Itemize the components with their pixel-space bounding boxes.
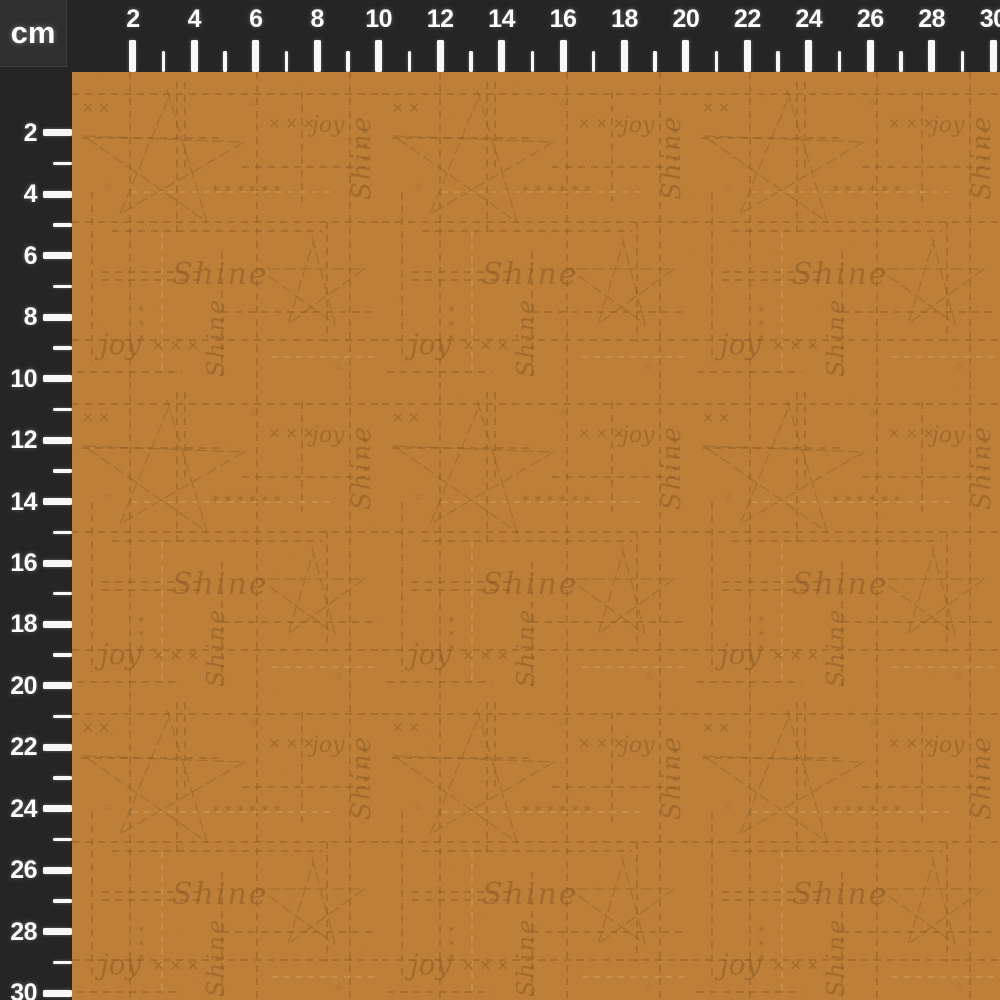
top-ruler-tick-12cm xyxy=(437,40,444,72)
top-ruler-tick-24cm xyxy=(805,40,812,72)
left-ruler-label-30: 30 xyxy=(0,978,37,1000)
left-ruler-tick-4cm xyxy=(43,191,72,198)
top-ruler-tick-11cm xyxy=(408,51,412,72)
top-ruler-tick-16cm xyxy=(560,40,567,72)
left-ruler-tick-2cm xyxy=(43,129,72,136)
left-ruler-tick-30cm xyxy=(43,990,72,997)
left-ruler-label-4: 4 xyxy=(0,179,37,209)
left-ruler-tick-24cm xyxy=(43,805,72,812)
top-ruler-tick-10cm xyxy=(375,40,382,72)
left-ruler-label-12: 12 xyxy=(0,425,37,455)
left-ruler-tick-5cm xyxy=(53,223,72,227)
top-ruler-tick-26cm xyxy=(867,40,874,72)
left-ruler-tick-22cm xyxy=(43,744,72,751)
left-ruler-label-24: 24 xyxy=(0,794,37,824)
top-ruler-tick-5cm xyxy=(223,51,227,72)
left-ruler-tick-18cm xyxy=(43,621,72,628)
fabric-swatch: Shine Shine Shine joy joy × × × × × × × … xyxy=(72,72,1000,1000)
left-ruler-label-14: 14 xyxy=(0,487,37,517)
left-ruler-tick-25cm xyxy=(53,838,72,842)
top-ruler-label-26: 26 xyxy=(840,5,900,34)
top-ruler-label-2: 2 xyxy=(103,5,163,34)
top-ruler-label-24: 24 xyxy=(779,5,839,34)
left-ruler-tick-16cm xyxy=(43,560,72,567)
top-ruler-tick-14cm xyxy=(498,40,505,72)
left-ruler-tick-28cm xyxy=(43,928,72,935)
top-ruler: 24681012141618202224262830 xyxy=(0,0,1000,72)
left-ruler-tick-15cm xyxy=(53,531,72,535)
left-ruler-tick-6cm xyxy=(43,252,72,259)
top-ruler-tick-4cm xyxy=(191,40,198,72)
top-ruler-label-4: 4 xyxy=(164,5,224,34)
left-ruler-tick-26cm xyxy=(43,867,72,874)
top-ruler-tick-27cm xyxy=(899,51,903,72)
top-ruler-label-28: 28 xyxy=(902,5,962,34)
top-ruler-label-18: 18 xyxy=(594,5,654,34)
fabric-texture-grain xyxy=(72,72,1000,1000)
left-ruler-label-8: 8 xyxy=(0,302,37,332)
top-ruler-tick-15cm xyxy=(531,51,535,72)
top-ruler-tick-18cm xyxy=(621,40,628,72)
top-ruler-tick-3cm xyxy=(162,51,166,72)
left-ruler-tick-13cm xyxy=(53,469,72,473)
top-ruler-tick-19cm xyxy=(653,51,657,72)
top-ruler-label-6: 6 xyxy=(226,5,286,34)
top-ruler-tick-6cm xyxy=(252,40,259,72)
left-ruler-tick-14cm xyxy=(43,498,72,505)
left-ruler: 24681012141618202224262830 xyxy=(0,0,72,1000)
top-ruler-tick-30cm xyxy=(990,40,997,72)
top-ruler-tick-13cm xyxy=(469,51,473,72)
left-ruler-tick-11cm xyxy=(53,408,72,412)
left-ruler-tick-20cm xyxy=(43,682,72,689)
top-ruler-tick-25cm xyxy=(838,51,842,72)
ruler-unit-label: cm xyxy=(11,15,56,51)
top-ruler-label-10: 10 xyxy=(349,5,409,34)
left-ruler-label-22: 22 xyxy=(0,732,37,762)
left-ruler-tick-21cm xyxy=(53,715,72,719)
top-ruler-tick-29cm xyxy=(961,51,965,72)
left-ruler-label-20: 20 xyxy=(0,671,37,701)
top-ruler-tick-8cm xyxy=(314,40,321,72)
left-ruler-tick-23cm xyxy=(53,776,72,780)
left-ruler-tick-7cm xyxy=(53,285,72,289)
fabric-swatch-with-ruler: 24681012141618202224262830 2468101214161… xyxy=(0,0,1000,1000)
top-ruler-label-14: 14 xyxy=(472,5,532,34)
top-ruler-tick-22cm xyxy=(744,40,751,72)
top-ruler-tick-23cm xyxy=(776,51,780,72)
ruler-unit-box: cm xyxy=(0,0,67,67)
top-ruler-label-20: 20 xyxy=(656,5,716,34)
left-ruler-tick-8cm xyxy=(43,314,72,321)
left-ruler-label-6: 6 xyxy=(0,241,37,271)
left-ruler-tick-9cm xyxy=(53,346,72,350)
top-ruler-label-22: 22 xyxy=(717,5,777,34)
left-ruler-label-18: 18 xyxy=(0,609,37,639)
top-ruler-label-30: 30 xyxy=(963,5,1000,34)
top-ruler-tick-17cm xyxy=(592,51,596,72)
fabric-pattern: Shine Shine Shine joy joy × × × × × × × … xyxy=(72,72,1000,1000)
left-ruler-tick-29cm xyxy=(53,961,72,965)
left-ruler-label-10: 10 xyxy=(0,364,37,394)
top-ruler-tick-9cm xyxy=(346,51,350,72)
top-ruler-label-16: 16 xyxy=(533,5,593,34)
left-ruler-tick-3cm xyxy=(53,162,72,166)
left-ruler-label-26: 26 xyxy=(0,855,37,885)
top-ruler-label-8: 8 xyxy=(287,5,347,34)
top-ruler-tick-20cm xyxy=(682,40,689,72)
left-ruler-tick-12cm xyxy=(43,437,72,444)
left-ruler-tick-10cm xyxy=(43,375,72,382)
left-ruler-label-2: 2 xyxy=(0,118,37,148)
top-ruler-tick-7cm xyxy=(285,51,289,72)
left-ruler-label-28: 28 xyxy=(0,917,37,947)
top-ruler-tick-28cm xyxy=(928,40,935,72)
top-ruler-tick-2cm xyxy=(129,40,136,72)
top-ruler-label-12: 12 xyxy=(410,5,470,34)
left-ruler-tick-27cm xyxy=(53,899,72,903)
left-ruler-tick-17cm xyxy=(53,592,72,596)
left-ruler-tick-19cm xyxy=(53,653,72,657)
top-ruler-tick-21cm xyxy=(715,51,719,72)
left-ruler-label-16: 16 xyxy=(0,548,37,578)
